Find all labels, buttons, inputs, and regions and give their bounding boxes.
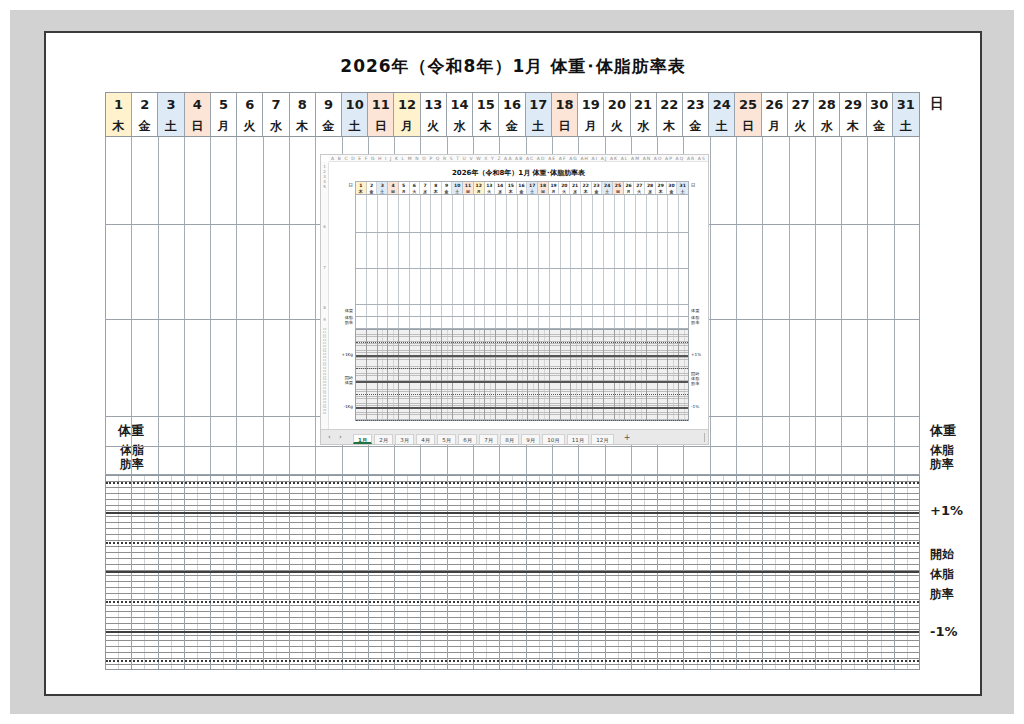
day-number: 1 (106, 94, 131, 116)
inset-day-header-row: 1木2金3土4日5月6火7水8木9金10土11日12月13火14水15木16金1… (355, 181, 689, 195)
day-of-week: 日 (735, 116, 760, 136)
day-cell-8: 8木 (290, 93, 316, 136)
day-of-week: 金 (442, 189, 452, 195)
day-number: 5 (211, 94, 236, 116)
day-number: 21 (631, 94, 656, 116)
gridline-dotted (106, 601, 919, 603)
day-cell-21: 21水 (570, 182, 581, 194)
day-number: 30 (867, 94, 892, 116)
day-number: 19 (578, 94, 603, 116)
day-number: 9 (316, 94, 341, 116)
day-cell-14: 14水 (495, 182, 506, 194)
day-cell-15: 15木 (473, 93, 499, 136)
day-cell-2: 2金 (132, 93, 158, 136)
day-of-week: 日 (538, 189, 548, 195)
day-number: 31 (893, 94, 919, 116)
gridline-dotted (356, 394, 688, 395)
day-number: 24 (709, 94, 734, 116)
day-of-week: 日 (463, 189, 473, 195)
sheet-tab-7月[interactable]: 7月 (479, 434, 498, 444)
day-cell-16: 16金 (517, 182, 528, 194)
inset-right-bodyfat-label: 体脂 肪率 (691, 316, 708, 325)
day-of-week: 金 (316, 116, 341, 136)
day-header-row: 1木2金3土4日5月6火7水8木9金10土11日12月13火14水15木16金1… (105, 92, 920, 137)
day-number: 18 (552, 94, 577, 116)
day-number: 15 (473, 94, 498, 116)
day-of-week: 木 (473, 116, 498, 136)
day-of-week: 水 (814, 116, 839, 136)
tab-scroll-left-icon[interactable]: ‹ (325, 431, 334, 444)
day-of-week: 日 (388, 189, 398, 195)
inset-right-day-label: 日 (691, 183, 708, 188)
day-of-week: 木 (506, 189, 516, 195)
day-of-week: 火 (485, 189, 495, 195)
day-number: 10 (342, 94, 367, 116)
day-cell-25: 25日 (735, 93, 761, 136)
plus1-reference-line (106, 512, 919, 514)
day-number: 6 (237, 94, 262, 116)
row-divider (356, 268, 688, 269)
day-number: 14 (447, 94, 472, 116)
day-of-week: 金 (132, 116, 157, 136)
day-of-week: 火 (421, 116, 446, 136)
excel-row-number: 6 (321, 225, 328, 229)
sheet-tab-bar: ‹ › 1月2月3月4月5月6月7月8月9月10月11月12月 + (321, 429, 708, 444)
day-of-week: 木 (840, 116, 865, 136)
row-divider (356, 232, 688, 233)
day-number: 23 (683, 94, 708, 116)
day-cell-28: 28水 (814, 93, 840, 136)
day-of-week: 日 (185, 116, 210, 136)
day-cell-5: 5月 (399, 182, 410, 194)
inset-sheet-title: 2026年（令和8年）1月 体重･体脂肪率表 (329, 168, 708, 178)
gray-backdrop: 2026年（令和8年）1月 体重･体脂肪率表 日 体重 体脂 肪率 +1Kg 開… (10, 10, 1014, 714)
gridline-dotted (356, 342, 688, 343)
inset-weight-entry-row (355, 305, 689, 317)
day-cell-31: 31土 (677, 182, 688, 194)
inset-left-bodyfat-label: 体脂 肪率 (329, 316, 353, 325)
day-of-week: 木 (581, 189, 591, 195)
inset-right-plus1pct-label: +1% (691, 352, 708, 357)
day-of-week: 土 (709, 116, 734, 136)
day-cell-3: 3土 (377, 182, 388, 194)
sheet-tab-4月[interactable]: 4月 (416, 434, 435, 444)
day-of-week: 月 (578, 116, 603, 136)
excel-row-number: 8 (321, 306, 328, 310)
day-cell-1: 1木 (356, 182, 367, 194)
day-cell-10: 10土 (342, 93, 368, 136)
tabbar-end-divider (704, 433, 705, 442)
sheet-tab-9月[interactable]: 9月 (521, 434, 540, 444)
day-of-week: 金 (683, 116, 708, 136)
day-of-week: 金 (867, 116, 892, 136)
day-of-week: 土 (377, 189, 387, 195)
inset-entry-rows-area (355, 195, 689, 305)
day-cell-29: 29木 (656, 182, 667, 194)
bodyfat-entry-row (105, 447, 920, 475)
right-weight-label: 体重 (930, 422, 1000, 440)
add-sheet-button[interactable]: + (624, 431, 631, 444)
day-of-week: 土 (893, 116, 919, 136)
day-cell-7: 7水 (420, 182, 431, 194)
day-cell-30: 30金 (667, 182, 678, 194)
day-of-week: 土 (527, 189, 537, 195)
day-number: 2 (132, 94, 157, 116)
day-cell-15: 15木 (506, 182, 517, 194)
right-bodyfat-label: 体脂 肪率 (930, 443, 1000, 471)
excel-row-number: 5 (321, 185, 328, 189)
day-of-week: 木 (431, 189, 441, 195)
day-cell-8: 8木 (431, 182, 442, 194)
day-cell-16: 16金 (499, 93, 525, 136)
day-of-week: 月 (624, 189, 634, 195)
day-cell-17: 17土 (526, 93, 552, 136)
day-cell-28: 28水 (645, 182, 656, 194)
day-cell-19: 19月 (578, 93, 604, 136)
day-cell-14: 14水 (447, 93, 473, 136)
tab-scroll-right-icon[interactable]: › (336, 431, 345, 444)
day-of-week: 月 (762, 116, 787, 136)
day-of-week: 火 (634, 189, 644, 195)
day-cell-22: 22木 (581, 182, 592, 194)
day-cell-26: 26月 (762, 93, 788, 136)
day-cell-19: 19月 (549, 182, 560, 194)
day-cell-25: 25日 (613, 182, 624, 194)
gridline-dotted (106, 482, 919, 484)
day-of-week: 火 (559, 189, 569, 195)
day-number: 13 (421, 94, 446, 116)
day-cell-18: 18日 (538, 182, 549, 194)
day-of-week: 火 (410, 189, 420, 195)
day-cell-29: 29木 (840, 93, 866, 136)
day-number: 7 (263, 94, 288, 116)
day-cell-6: 6火 (237, 93, 263, 136)
day-of-week: 水 (631, 116, 656, 136)
excel-screenshot-inset: A B C D E F G H I J K L M N O P Q R S T … (320, 154, 709, 445)
gridline-dotted (106, 542, 919, 544)
day-of-week: 木 (106, 116, 131, 136)
day-of-week: 火 (604, 116, 629, 136)
right-plus1pct-label: +1% (930, 503, 1000, 518)
day-of-week: 日 (368, 116, 393, 136)
day-of-week: 木 (290, 116, 315, 136)
day-number: 22 (657, 94, 682, 116)
day-cell-26: 26月 (624, 182, 635, 194)
day-of-week: 金 (517, 189, 527, 195)
day-of-week: 金 (499, 116, 524, 136)
excel-row-number: 7 (321, 266, 328, 270)
day-of-week: 月 (474, 189, 484, 195)
sheet-tab-11月[interactable]: 11月 (567, 434, 590, 444)
day-cell-21: 21水 (631, 93, 657, 136)
day-number: 27 (788, 94, 813, 116)
sheet-tab-6月[interactable]: 6月 (458, 434, 477, 444)
day-cell-4: 4日 (185, 93, 211, 136)
inset-left-start-weight-label: 開始 体重 (329, 376, 353, 386)
inset-right-minus1pct-label: -1% (691, 404, 708, 409)
day-cell-9: 9金 (442, 182, 453, 194)
day-cell-22: 22木 (657, 93, 683, 136)
day-number: 28 (814, 94, 839, 116)
day-of-week: 土 (342, 116, 367, 136)
inset-right-weight-label: 体重 (691, 308, 708, 313)
day-number: 17 (526, 94, 551, 116)
day-of-week: 木 (356, 189, 366, 195)
day-of-week: 日 (613, 189, 623, 195)
day-cell-11: 11日 (463, 182, 474, 194)
sheet-tab-8月[interactable]: 8月 (500, 434, 519, 444)
day-cell-7: 7水 (263, 93, 289, 136)
sheet-tab-12月[interactable]: 12月 (591, 434, 614, 444)
day-of-week: 火 (788, 116, 813, 136)
day-number: 3 (158, 94, 183, 116)
gridline-dotted (356, 420, 688, 421)
day-of-week: 土 (602, 189, 612, 195)
day-cell-18: 18日 (552, 93, 578, 136)
day-of-week: 金 (667, 189, 677, 195)
gridline-dotted (356, 368, 688, 369)
day-number: 20 (604, 94, 629, 116)
gridline-dotted (106, 660, 919, 662)
day-number: 29 (840, 94, 865, 116)
start-reference-line (356, 381, 688, 383)
day-cell-20: 20火 (559, 182, 570, 194)
day-number: 16 (499, 94, 524, 116)
day-of-week: 水 (570, 189, 580, 195)
day-of-week: 水 (447, 116, 472, 136)
day-cell-12: 12月 (474, 182, 485, 194)
day-cell-24: 24土 (602, 182, 613, 194)
day-cell-27: 27火 (634, 182, 645, 194)
day-cell-31: 31土 (893, 93, 919, 136)
tracking-chart-grid (105, 475, 920, 670)
sheet-tab-3月[interactable]: 3月 (395, 434, 414, 444)
day-of-week: 月 (394, 116, 419, 136)
page-title: 2026年（令和8年）1月 体重･体脂肪率表 (46, 55, 980, 78)
day-of-week: 月 (549, 189, 559, 195)
day-of-week: 火 (237, 116, 262, 136)
inset-left-day-label: 日 (329, 183, 353, 188)
sheet-tab-5月[interactable]: 5月 (437, 434, 456, 444)
printable-sheet-page: 2026年（令和8年）1月 体重･体脂肪率表 日 体重 体脂 肪率 +1Kg 開… (44, 31, 982, 696)
day-cell-2: 2金 (367, 182, 378, 194)
sheet-tab-10月[interactable]: 10月 (542, 434, 565, 444)
day-cell-30: 30金 (867, 93, 893, 136)
day-number: 8 (290, 94, 315, 116)
day-cell-9: 9金 (316, 93, 342, 136)
inset-right-start-bodyfat-label: 開始 体脂 肪率 (691, 372, 708, 386)
sheet-tab-1月[interactable]: 1月 (353, 434, 372, 444)
day-of-week: 土 (677, 189, 688, 195)
day-of-week: 木 (656, 189, 666, 195)
day-of-week: 木 (657, 116, 682, 136)
day-number: 25 (735, 94, 760, 116)
start-reference-line (106, 571, 919, 573)
day-cell-4: 4日 (388, 182, 399, 194)
day-number: 12 (394, 94, 419, 116)
day-cell-23: 23金 (683, 93, 709, 136)
excel-row-headers: 123456789 10 11 12 13 14 15 16 17 18 19 … (321, 162, 329, 429)
inset-tracking-chart-grid (355, 329, 689, 421)
inset-calendar-grid: 1木2金3土4日5月6火7水8木9金10土11日12月13火14水15木16金1… (355, 181, 689, 421)
day-cell-6: 6火 (410, 182, 421, 194)
day-of-week: 土 (452, 189, 462, 195)
right-start-bodyfat-label: 開始 体脂 肪率 (930, 544, 1000, 604)
day-number: 4 (185, 94, 210, 116)
inset-left-plus1kg-label: +1Kg (329, 352, 353, 357)
day-of-week: 金 (592, 189, 602, 195)
day-of-week: 金 (367, 189, 377, 195)
minus1-reference-line (356, 407, 688, 409)
right-minus1pct-label: -1% (930, 624, 1000, 639)
day-of-week: 水 (495, 189, 505, 195)
day-of-week: 水 (420, 189, 430, 195)
plus1-reference-line (356, 355, 688, 357)
day-of-week: 土 (158, 116, 183, 136)
inset-bodyfat-entry-row (355, 317, 689, 329)
day-cell-27: 27火 (788, 93, 814, 136)
day-of-week: 月 (399, 189, 409, 195)
excel-sheet-area[interactable]: 2026年（令和8年）1月 体重･体脂肪率表 日 体重 体脂 肪率 +1Kg 開… (329, 162, 708, 429)
inset-left-weight-label: 体重 (329, 308, 353, 313)
day-cell-5: 5月 (211, 93, 237, 136)
day-of-week: 月 (211, 116, 236, 136)
day-cell-20: 20火 (604, 93, 630, 136)
day-of-week: 水 (263, 116, 288, 136)
day-of-week: 土 (526, 116, 551, 136)
day-cell-23: 23金 (592, 182, 603, 194)
sheet-tab-2月[interactable]: 2月 (374, 434, 393, 444)
day-cell-13: 13火 (421, 93, 447, 136)
day-number: 26 (762, 94, 787, 116)
day-cell-11: 11日 (368, 93, 394, 136)
day-of-week: 日 (552, 116, 577, 136)
day-cell-3: 3土 (158, 93, 184, 136)
day-of-week: 水 (645, 189, 655, 195)
inset-left-minus1kg-label: -1Kg (329, 404, 353, 409)
right-day-label: 日 (930, 95, 1000, 113)
day-cell-12: 12月 (394, 93, 420, 136)
day-cell-24: 24土 (709, 93, 735, 136)
excel-row-numbers-strip: 10 11 12 13 14 15 16 17 18 19 20 21 22 2… (321, 329, 328, 416)
minus1-reference-line (106, 631, 919, 633)
day-cell-10: 10土 (452, 182, 463, 194)
excel-column-headers: A B C D E F G H I J K L M N O P Q R S T … (329, 155, 708, 162)
excel-row-number: 9 (321, 318, 328, 322)
day-cell-17: 17土 (527, 182, 538, 194)
day-cell-13: 13火 (485, 182, 496, 194)
day-cell-1: 1木 (106, 93, 132, 136)
day-number: 11 (368, 94, 393, 116)
